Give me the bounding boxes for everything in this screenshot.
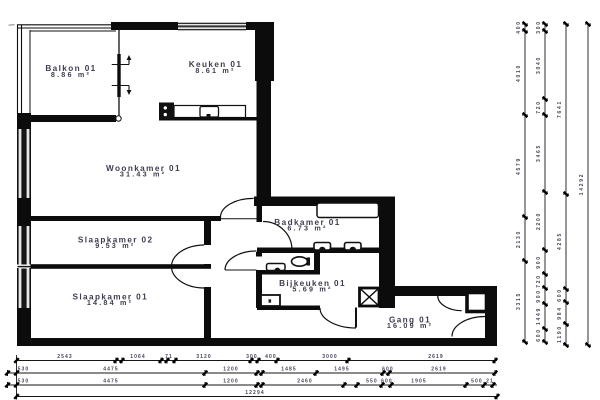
svg-text:2543: 2543 [57, 354, 73, 360]
svg-text:4475: 4475 [103, 367, 119, 373]
svg-text:5.69 m²: 5.69 m² [292, 285, 332, 294]
svg-text:984: 984 [557, 306, 563, 319]
svg-text:3040: 3040 [536, 56, 542, 74]
svg-text:500: 500 [471, 379, 483, 385]
svg-text:400: 400 [265, 354, 277, 360]
svg-text:1190: 1190 [557, 325, 563, 343]
svg-text:2200: 2200 [536, 212, 542, 230]
svg-text:530: 530 [18, 367, 30, 373]
svg-text:550: 550 [366, 379, 378, 385]
svg-text:300: 300 [246, 354, 258, 360]
svg-text:2619: 2619 [431, 367, 447, 373]
svg-text:900: 900 [536, 289, 542, 302]
svg-text:400: 400 [516, 20, 522, 33]
svg-text:12294: 12294 [245, 390, 264, 396]
svg-text:1485: 1485 [281, 367, 297, 373]
svg-text:21: 21 [486, 379, 494, 385]
svg-text:4579: 4579 [516, 157, 522, 175]
svg-text:720: 720 [536, 100, 542, 113]
svg-text:2460: 2460 [297, 379, 313, 385]
svg-text:1905: 1905 [411, 379, 427, 385]
svg-text:7641: 7641 [557, 100, 563, 118]
svg-text:300: 300 [536, 20, 542, 33]
svg-text:4010: 4010 [516, 64, 522, 82]
svg-text:9.53 m²: 9.53 m² [95, 241, 135, 250]
svg-text:14.84 m²: 14.84 m² [87, 298, 133, 307]
svg-text:600: 600 [382, 367, 394, 373]
svg-text:1495: 1495 [334, 367, 350, 373]
svg-text:8.61 m²: 8.61 m² [195, 66, 235, 75]
svg-text:2130: 2130 [516, 230, 522, 248]
svg-text:31.43 m²: 31.43 m² [120, 170, 166, 179]
svg-text:720: 720 [536, 274, 542, 287]
svg-text:530: 530 [18, 379, 30, 385]
svg-text:16.09 m²: 16.09 m² [387, 321, 433, 330]
svg-text:1200: 1200 [223, 367, 239, 373]
svg-text:1449: 1449 [536, 307, 542, 325]
svg-text:3000: 3000 [322, 354, 338, 360]
svg-text:6.73 m²: 6.73 m² [287, 224, 327, 233]
svg-text:1064: 1064 [130, 354, 146, 360]
svg-text:600: 600 [381, 379, 393, 385]
svg-text:8.86 m²: 8.86 m² [51, 70, 91, 79]
svg-text:3315: 3315 [516, 292, 522, 310]
svg-text:3120: 3120 [196, 354, 212, 360]
svg-text:71: 71 [165, 354, 173, 360]
svg-text:900: 900 [536, 255, 542, 268]
svg-text:2619: 2619 [428, 354, 444, 360]
svg-text:600: 600 [557, 288, 563, 301]
svg-text:14292: 14292 [579, 173, 585, 195]
svg-text:3465: 3465 [536, 144, 542, 162]
svg-text:1200: 1200 [223, 379, 239, 385]
svg-text:4475: 4475 [103, 379, 119, 385]
svg-text:600: 600 [536, 328, 542, 341]
svg-text:4285: 4285 [557, 232, 563, 250]
